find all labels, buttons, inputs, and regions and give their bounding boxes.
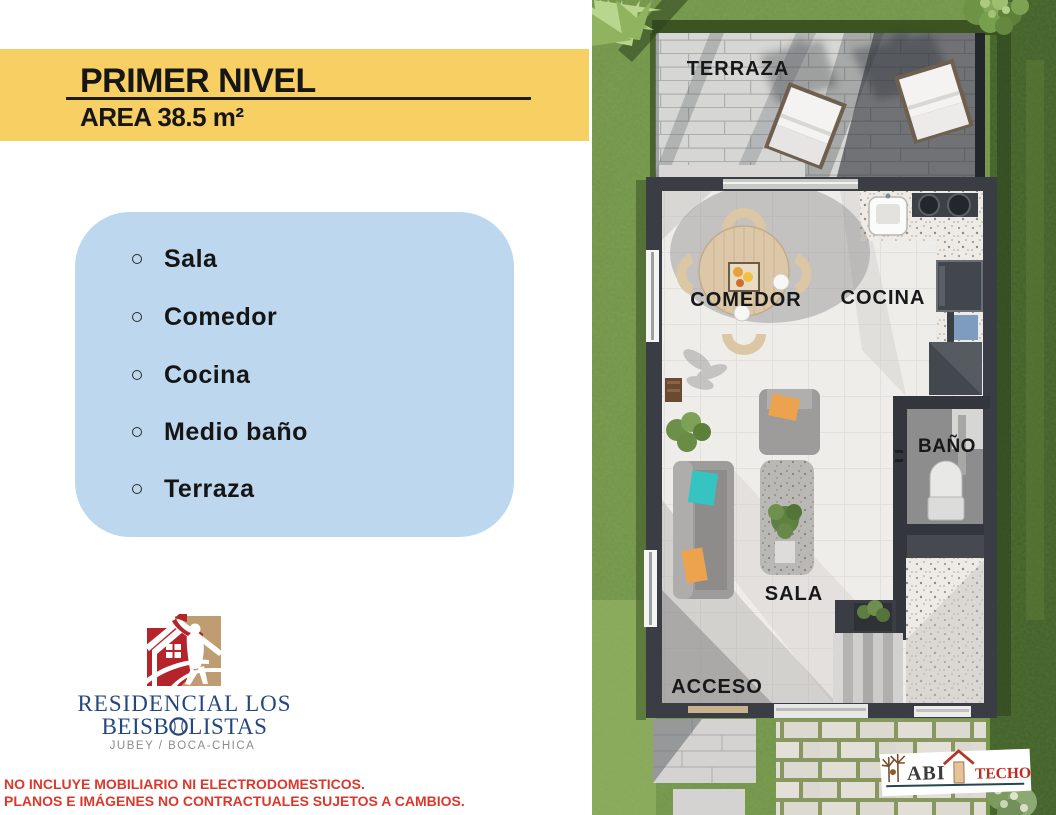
svg-text:ABI: ABI xyxy=(907,762,946,785)
svg-text:COCINA: COCINA xyxy=(841,287,926,309)
svg-text:SALA: SALA xyxy=(765,583,823,605)
svg-text:COMEDOR: COMEDOR xyxy=(690,289,801,311)
svg-text:ACCESO: ACCESO xyxy=(671,676,763,698)
svg-text:TERRAZA: TERRAZA xyxy=(687,58,790,80)
svg-text:BAÑO: BAÑO xyxy=(918,435,976,457)
svg-text:TECHO: TECHO xyxy=(975,765,1031,783)
